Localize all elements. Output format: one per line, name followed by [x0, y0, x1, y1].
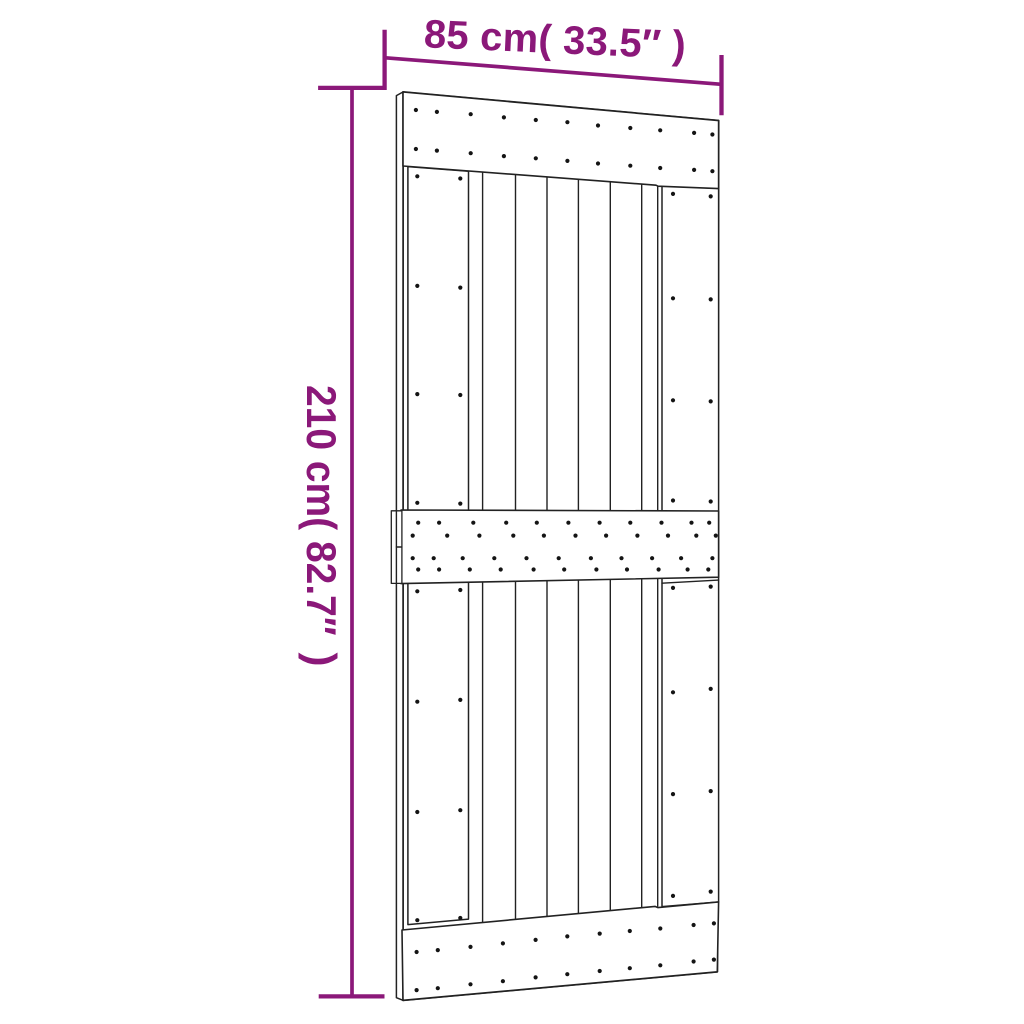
- svg-text:210 cm( 82.7″): 210 cm( 82.7″): [298, 385, 345, 667]
